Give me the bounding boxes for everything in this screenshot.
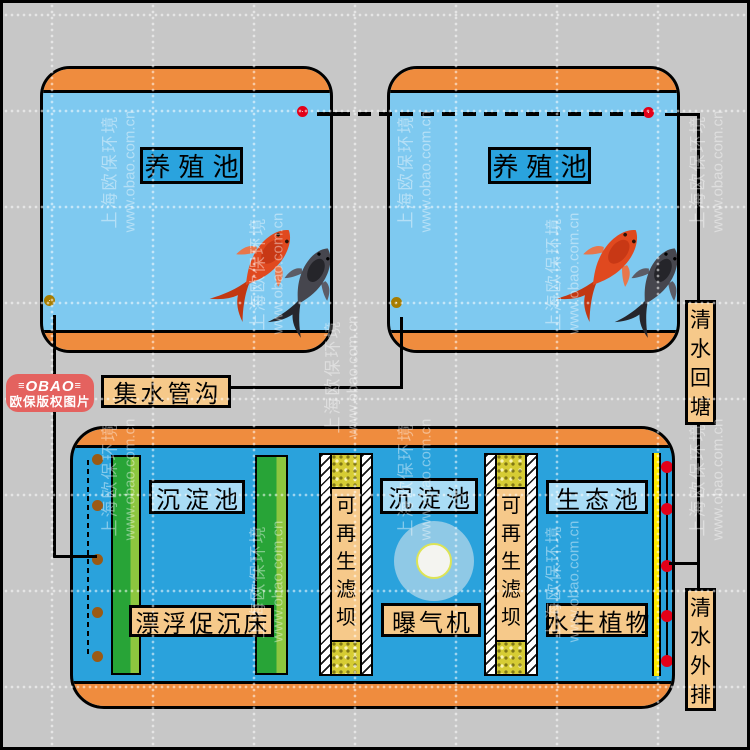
aerator-core bbox=[416, 543, 452, 579]
diagram-canvas: 养殖池 养殖池 bbox=[0, 0, 750, 750]
pond-link-dashed-pipe bbox=[337, 112, 645, 116]
treatment-rim-bottom bbox=[73, 681, 672, 706]
return-pipe-horizontal bbox=[665, 113, 700, 116]
overflow-weir bbox=[652, 453, 661, 676]
return-to-pond-label: 清水回塘 bbox=[685, 300, 716, 425]
filter-dam2-label: 可再生滤坝 bbox=[497, 489, 525, 640]
pond1-outlet-stub bbox=[317, 112, 337, 116]
clearwater-dot bbox=[661, 655, 673, 667]
inlet-dot bbox=[92, 607, 103, 618]
filter-dam-2: 可再生滤坝 bbox=[484, 453, 538, 676]
treatment-pool: 沉淀池 漂浮促沉床 可再生滤坝 沉淀池 曝气机 可再生滤坝 生态池 bbox=[70, 426, 675, 709]
dam-hatch bbox=[360, 455, 371, 674]
clearwater-junction bbox=[669, 562, 700, 565]
inlet-dot bbox=[92, 500, 103, 511]
pond-rim-top bbox=[390, 69, 677, 93]
aerator-label: 曝气机 bbox=[381, 603, 481, 637]
pond2-label: 养殖池 bbox=[488, 147, 591, 184]
pond1-drain-pipe bbox=[53, 315, 56, 558]
clearwater-dot bbox=[661, 610, 673, 622]
filter-media bbox=[332, 640, 360, 674]
inlet-dot bbox=[92, 651, 103, 662]
filter-dam1-label: 可再生滤坝 bbox=[332, 489, 360, 640]
pond1-drain-elbow bbox=[53, 555, 97, 558]
black-koi-fish bbox=[602, 241, 680, 341]
obao-logo: ≡OBAO≡ bbox=[18, 378, 82, 395]
sedimentation1-label: 沉淀池 bbox=[149, 480, 245, 514]
pond2-drain-pipe bbox=[400, 317, 403, 389]
discharge-label: 清水外排 bbox=[685, 588, 716, 711]
aerator-ring bbox=[394, 521, 474, 601]
breeding-pond-1: 养殖池 bbox=[40, 66, 333, 353]
pond1-label: 养殖池 bbox=[140, 147, 243, 184]
floating-settling-bed bbox=[255, 455, 288, 675]
pond-rim-top bbox=[43, 69, 330, 93]
copyright-caption: 欧保版权图片 bbox=[9, 395, 90, 409]
clearwater-dot bbox=[661, 503, 673, 515]
filter-media bbox=[497, 640, 525, 674]
obao-copyright-stamp: ≡OBAO≡ 欧保版权图片 bbox=[6, 374, 94, 412]
dam-hatch bbox=[525, 455, 536, 674]
clearwater-dot bbox=[661, 461, 673, 473]
floating-settling-bed bbox=[111, 455, 141, 675]
aquatic-plants-label: 水生植物 bbox=[546, 603, 648, 637]
breeding-pond-2: 养殖池 bbox=[387, 66, 680, 353]
treatment-rim-top bbox=[73, 429, 672, 448]
dam-hatch bbox=[321, 455, 332, 674]
filter-dam-1: 可再生滤坝 bbox=[319, 453, 373, 676]
watermark-tile: 上海欧保环境www.obao.com.cn bbox=[688, 87, 729, 257]
filter-media bbox=[332, 455, 360, 489]
black-koi-fish bbox=[255, 241, 333, 341]
inlet-dot bbox=[92, 454, 103, 465]
ecological-pond-label: 生态池 bbox=[546, 480, 648, 514]
sedimentation2-label: 沉淀池 bbox=[380, 478, 478, 514]
dam-hatch bbox=[486, 455, 497, 674]
collector-trench-label: 集水管沟 bbox=[101, 375, 231, 408]
pond1-drain-port bbox=[44, 295, 55, 306]
filter-media bbox=[497, 455, 525, 489]
floating-bed-label: 漂浮促沉床 bbox=[129, 605, 274, 637]
inlet-distribution-pipe bbox=[87, 460, 89, 657]
pond2-drain-port bbox=[391, 297, 402, 308]
pond2-drain-elbow bbox=[230, 386, 402, 389]
pond1-outlet-port bbox=[297, 106, 308, 117]
